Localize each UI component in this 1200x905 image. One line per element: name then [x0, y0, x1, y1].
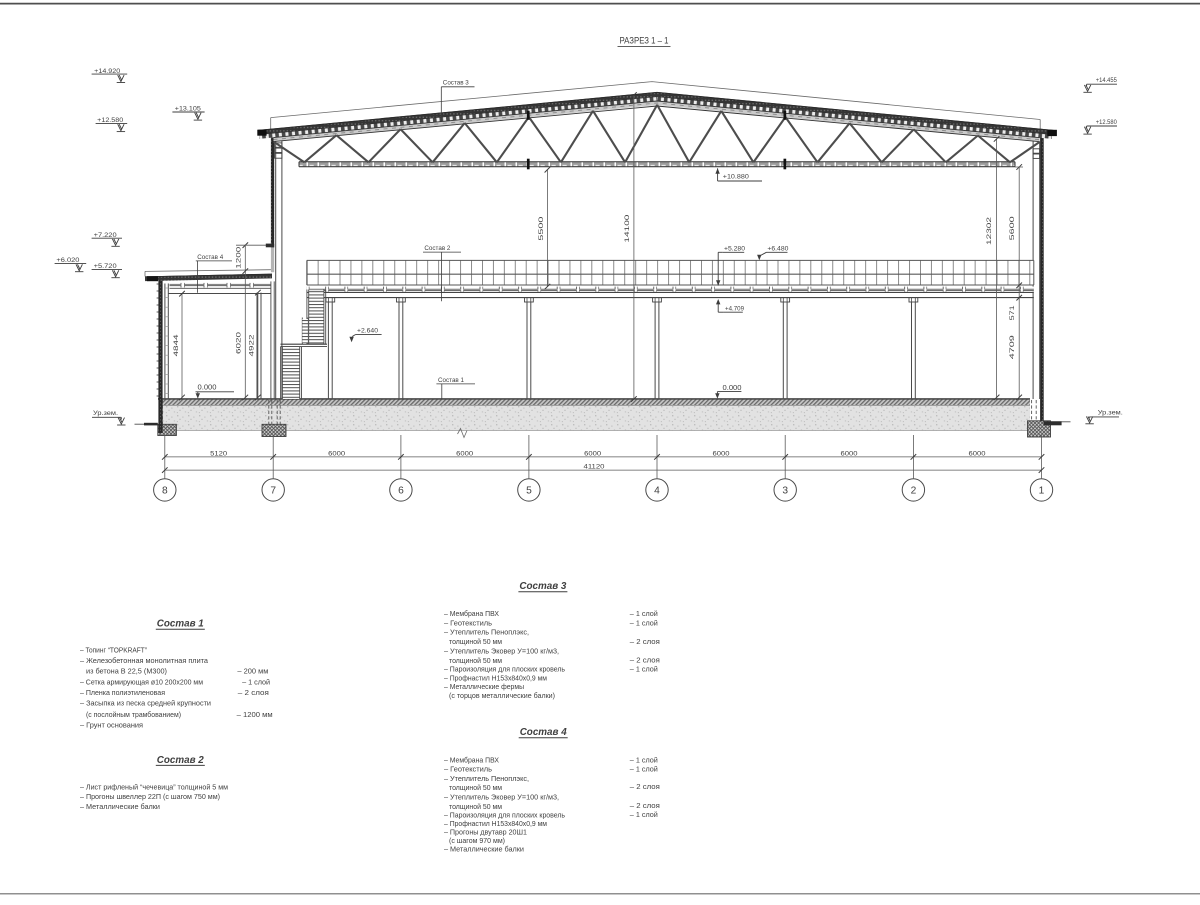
svg-text:Ур.зем.: Ур.зем.: [93, 410, 118, 417]
svg-text:6000: 6000: [456, 451, 473, 458]
svg-text:– Мембрана ПВХ: – Мембрана ПВХ: [444, 755, 499, 764]
svg-text:– Засыпка из песка средней кру: – Засыпка из песка средней крупности: [80, 699, 211, 708]
svg-text:– Пароизоляция для плоских кро: – Пароизоляция для плоских кровель: [444, 665, 565, 674]
svg-text:+12.580: +12.580: [97, 117, 123, 124]
svg-text:– 1 слой: – 1 слой: [630, 756, 658, 765]
svg-text:4844: 4844: [173, 334, 180, 356]
svg-text:+12.580: +12.580: [1096, 119, 1117, 126]
svg-text:– 1 слой: – 1 слой: [630, 618, 658, 627]
svg-text:– Пленка полиэтиленовая: – Пленка полиэтиленовая: [80, 688, 165, 697]
svg-text:Состав 1: Состав 1: [438, 377, 464, 384]
svg-text:– 1 слой: – 1 слой: [242, 677, 270, 686]
svg-text:– 1 слой: – 1 слой: [630, 810, 658, 819]
svg-text:+14.455: +14.455: [1096, 77, 1117, 84]
svg-text:Состав 1: Состав 1: [157, 619, 204, 630]
svg-text:+4.709: +4.709: [725, 306, 744, 313]
svg-text:– Утеплитель Пеноплэкс,: – Утеплитель Пеноплэкс,: [444, 628, 529, 637]
svg-text:– 2 слоя: – 2 слоя: [630, 801, 660, 810]
svg-text:– 2 слоя: – 2 слоя: [238, 688, 269, 697]
svg-text:– Железобетонная монолитная п: – Железобетонная монолитная плита: [80, 656, 208, 665]
svg-text:4709: 4709: [1009, 335, 1016, 359]
svg-text:– Геотекстиль: – Геотекстиль: [444, 618, 492, 627]
svg-text:1: 1: [1039, 486, 1045, 497]
svg-text:+5.280: +5.280: [724, 245, 745, 252]
svg-text:– Металлические балки: – Металлические балки: [444, 844, 524, 853]
svg-text:0.000: 0.000: [198, 383, 217, 392]
svg-text:Состав 4: Состав 4: [520, 727, 567, 738]
svg-text:– 2 слоя: – 2 слоя: [630, 782, 660, 791]
svg-text:14100: 14100: [624, 214, 631, 242]
svg-text:– Лист рифленый “чечевица” тол: – Лист рифленый “чечевица” толщиной 5 мм: [80, 783, 228, 792]
svg-text:Состав 3: Состав 3: [443, 80, 469, 87]
svg-text:5: 5: [526, 486, 532, 497]
svg-text:Состав 3: Состав 3: [519, 581, 566, 592]
svg-text:Состав 4: Состав 4: [197, 254, 223, 261]
svg-text:1200: 1200: [236, 246, 243, 268]
svg-text:41120: 41120: [584, 463, 605, 470]
svg-text:+10.880: +10.880: [723, 174, 749, 181]
svg-text:4: 4: [654, 486, 660, 497]
svg-text:– 2 слоя: – 2 слоя: [630, 637, 660, 646]
svg-text:– Профнастил Н153х840х0,9 мм: – Профнастил Н153х840х0,9 мм: [444, 673, 547, 682]
svg-text:– Утеплитель Эковер У=100 кг/м: – Утеплитель Эковер У=100 кг/м3,: [444, 647, 559, 656]
svg-text:6020: 6020: [236, 332, 243, 354]
svg-text:0.000: 0.000: [723, 383, 742, 392]
svg-text:– Сетка армирующая ø10 200х200: – Сетка армирующая ø10 200х200 мм: [80, 677, 203, 686]
svg-text:– Прогоны швеллер 22П (с шагом: – Прогоны швеллер 22П (с шагом 750 мм): [80, 792, 220, 801]
svg-text:6: 6: [398, 486, 404, 497]
svg-text:толщиной 50 мм: толщиной 50 мм: [449, 783, 502, 792]
svg-text:12302: 12302: [986, 217, 993, 245]
svg-text:толщиной 50 мм: толщиной 50 мм: [449, 637, 502, 646]
svg-text:– Металлические балки: – Металлические балки: [80, 802, 160, 811]
svg-text:571: 571: [1009, 305, 1016, 320]
svg-text:5600: 5600: [1009, 216, 1016, 240]
svg-text:– Металлические фермы: – Металлические фермы: [444, 682, 524, 691]
svg-text:– 1 слой: – 1 слой: [630, 664, 658, 673]
svg-text:– Геотекстиль: – Геотекстиль: [444, 765, 492, 774]
svg-text:6000: 6000: [584, 451, 601, 458]
svg-text:– 200 мм: – 200 мм: [237, 667, 268, 676]
svg-text:(с послойным трамбованием): (с послойным трамбованием): [86, 710, 181, 719]
svg-text:– Мембрана ПВХ: – Мембрана ПВХ: [444, 609, 499, 618]
svg-text:6000: 6000: [713, 451, 730, 458]
svg-text:– Утеплитель Эковер У=100 кг/м: – Утеплитель Эковер У=100 кг/м3,: [444, 793, 559, 802]
svg-text:6000: 6000: [328, 451, 345, 458]
svg-text:Ур.зем.: Ур.зем.: [1098, 410, 1123, 417]
svg-text:– Грунт основания: – Грунт основания: [80, 721, 143, 730]
svg-text:6000: 6000: [969, 451, 986, 458]
svg-text:РАЗРЕЗ 1 – 1: РАЗРЕЗ 1 – 1: [620, 36, 669, 46]
svg-text:– 1200 мм: – 1200 мм: [237, 710, 273, 719]
svg-text:– 1 слой: – 1 слой: [630, 765, 658, 774]
svg-text:2: 2: [911, 486, 917, 497]
svg-text:Состав 2: Состав 2: [157, 755, 204, 766]
svg-text:5500: 5500: [538, 216, 545, 240]
svg-text:6000: 6000: [841, 451, 858, 458]
svg-text:+2.640: +2.640: [357, 327, 378, 334]
svg-text:4922: 4922: [249, 334, 256, 356]
svg-text:8: 8: [162, 486, 168, 497]
svg-text:– Топинг “TOPKRAFT”: – Топинг “TOPKRAFT”: [80, 646, 148, 655]
svg-text:– Утеплитель Пеноплэкс,: – Утеплитель Пеноплэкс,: [444, 774, 529, 783]
svg-text:5120: 5120: [210, 451, 227, 458]
svg-text:(с торцов металлические балки): (с торцов металлические балки): [449, 691, 555, 700]
svg-text:3: 3: [782, 486, 788, 497]
svg-text:из бетона В 22,5 (М300): из бетона В 22,5 (М300): [86, 667, 167, 676]
svg-text:+13.105: +13.105: [175, 106, 201, 113]
svg-text:Состав 2: Состав 2: [424, 245, 450, 252]
svg-text:+6.480: +6.480: [767, 245, 788, 252]
svg-text:– 1 слой: – 1 слой: [630, 609, 658, 618]
svg-text:толщиной 50 мм: толщиной 50 мм: [449, 802, 502, 811]
svg-text:7: 7: [270, 486, 276, 497]
